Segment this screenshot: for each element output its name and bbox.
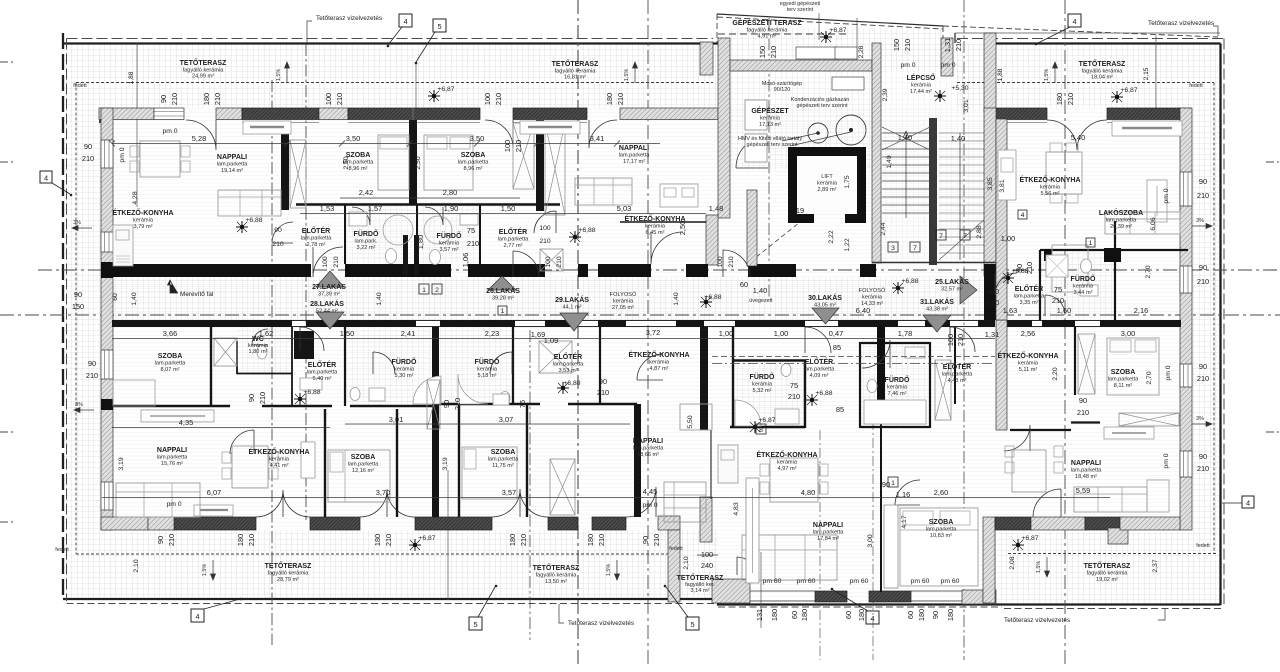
svg-text:2,88: 2,88	[976, 225, 983, 238]
svg-text:75: 75	[790, 381, 798, 390]
svg-text:3,70: 3,70	[376, 488, 390, 497]
svg-text:26.LAKÁS: 26.LAKÁS	[486, 286, 520, 295]
svg-text:100: 100	[987, 287, 999, 296]
svg-text:üvegezett: üvegezett	[749, 298, 773, 304]
svg-text:180: 180	[917, 609, 926, 621]
svg-text:pm 60: pm 60	[941, 578, 960, 585]
svg-text:Tetőterasz vizelvezetés: Tetőterasz vizelvezetés	[568, 620, 634, 627]
svg-text:210: 210	[1025, 262, 1034, 274]
svg-text:pm 0: pm 0	[1163, 188, 1170, 203]
svg-text:19,02 m²: 19,02 m²	[1096, 577, 1118, 583]
svg-text:FÜRDŐ: FÜRDŐ	[750, 372, 775, 381]
svg-text:4,80: 4,80	[801, 488, 815, 497]
svg-text:1,88: 1,88	[997, 68, 1004, 81]
svg-text:2,23: 2,23	[485, 329, 499, 338]
svg-text:kerámia: kerámia	[777, 460, 798, 466]
svg-text:1,09: 1,09	[544, 336, 558, 345]
svg-text:1,48: 1,48	[709, 204, 723, 213]
svg-text:18,04 m²: 18,04 m²	[1091, 75, 1113, 81]
svg-text:ÉTKEZŐ-KONYHA: ÉTKEZŐ-KONYHA	[112, 208, 173, 217]
svg-text:2,16: 2,16	[1134, 306, 1148, 315]
svg-text:ÉTKEZŐ-KONYHA: ÉTKEZŐ-KONYHA	[756, 450, 817, 459]
svg-text:1,88: 1,88	[128, 71, 135, 84]
svg-text:2,41: 2,41	[401, 329, 415, 338]
svg-text:SZOBA: SZOBA	[351, 454, 376, 461]
svg-text:2,28: 2,28	[858, 45, 865, 58]
svg-text:2,39: 2,39	[882, 88, 889, 101]
svg-text:90: 90	[641, 536, 650, 544]
svg-text:1,50: 1,50	[340, 329, 354, 338]
svg-text:3,50: 3,50	[346, 134, 360, 143]
svg-text:30.LAKÁS: 30.LAKÁS	[808, 293, 842, 302]
svg-text:210: 210	[1197, 374, 1209, 383]
svg-text:1,31: 1,31	[943, 38, 952, 52]
svg-text:5,40: 5,40	[1071, 133, 1085, 142]
svg-text:lam.parketta: lam.parketta	[348, 462, 380, 468]
svg-text:3,57: 3,57	[502, 488, 516, 497]
svg-text:7: 7	[939, 233, 943, 240]
svg-text:pm 0: pm 0	[642, 502, 657, 509]
svg-text:LÉPCSŐ: LÉPCSŐ	[907, 73, 936, 82]
svg-text:lam.parketta: lam.parketta	[488, 457, 520, 463]
svg-text:+6,87: +6,87	[437, 86, 454, 93]
svg-text:210: 210	[728, 256, 735, 268]
svg-text:ELŐTÉR: ELŐTÉR	[805, 357, 833, 366]
svg-text:7,46 m²: 7,46 m²	[888, 391, 907, 397]
svg-text:lam.parketta: lam.parketta	[301, 236, 333, 242]
svg-text:1,00: 1,00	[1001, 234, 1015, 243]
svg-text:4: 4	[195, 612, 199, 621]
svg-text:210: 210	[384, 534, 393, 546]
svg-text:+6,88: +6,88	[901, 278, 918, 285]
svg-text:75: 75	[467, 226, 475, 235]
svg-text:4,09 m²: 4,09 m²	[810, 373, 829, 379]
svg-text:3,19: 3,19	[442, 457, 449, 470]
svg-text:1,5%: 1,5%	[1044, 69, 1050, 81]
svg-text:kerámia: kerámia	[1073, 284, 1094, 290]
svg-text:1,5%: 1,5%	[606, 564, 612, 576]
svg-text:90: 90	[88, 359, 96, 368]
svg-text:ÉTKEZŐ-KONYHA: ÉTKEZŐ-KONYHA	[1019, 175, 1080, 184]
svg-text:pm 0: pm 0	[162, 128, 177, 135]
svg-text:2,60: 2,60	[934, 488, 948, 497]
svg-text:pm 60: pm 60	[911, 578, 930, 585]
svg-text:3,19: 3,19	[118, 457, 125, 470]
svg-text:+6,87: +6,87	[758, 417, 775, 424]
svg-text:TETŐTERASZ: TETŐTERASZ	[1084, 561, 1131, 570]
svg-text:210: 210	[170, 93, 179, 105]
svg-text:SZOBA: SZOBA	[929, 519, 954, 526]
svg-text:150: 150	[72, 302, 84, 311]
svg-text:kerámia: kerámia	[439, 241, 460, 247]
svg-text:3,22 m²: 3,22 m²	[357, 245, 376, 251]
svg-text:8: 8	[759, 427, 763, 434]
svg-text:210: 210	[556, 256, 563, 268]
svg-text:60: 60	[740, 280, 748, 289]
svg-text:28.LAKÁS: 28.LAKÁS	[310, 299, 344, 308]
svg-text:210: 210	[82, 154, 94, 163]
svg-text:5,50: 5,50	[687, 415, 694, 428]
svg-text:Tetőterasz vizelvezetés: Tetőterasz vizelvezetés	[1004, 617, 1070, 624]
svg-text:1,78: 1,78	[898, 329, 912, 338]
svg-text:2,10: 2,10	[683, 556, 690, 569]
svg-text:17,17 m²: 17,17 m²	[623, 159, 645, 165]
svg-text:5,56 m²: 5,56 m²	[1041, 191, 1060, 197]
svg-text:60: 60	[790, 611, 799, 619]
svg-text:27,05 m²: 27,05 m²	[612, 305, 634, 311]
svg-text:ELŐTÉR: ELŐTÉR	[554, 352, 582, 361]
svg-text:7: 7	[963, 233, 967, 240]
svg-text:kerámia: kerámia	[477, 367, 498, 373]
svg-text:ELŐTÉR: ELŐTÉR	[1015, 284, 1043, 293]
svg-text:17,44 m²: 17,44 m²	[910, 89, 932, 95]
svg-text:2,50: 2,50	[415, 156, 422, 169]
svg-text:90: 90	[599, 377, 607, 386]
svg-text:90: 90	[74, 290, 82, 299]
svg-text:210: 210	[247, 534, 256, 546]
svg-text:lam.park.: lam.park.	[354, 239, 377, 245]
svg-text:210: 210	[1052, 296, 1064, 305]
svg-text:4,97 m²: 4,97 m²	[778, 466, 797, 472]
svg-text:210: 210	[494, 93, 503, 105]
svg-text:210: 210	[597, 388, 609, 397]
svg-text:4,87 m²: 4,87 m²	[650, 366, 669, 372]
svg-text:NAPPALI: NAPPALI	[1071, 460, 1101, 467]
svg-text:5: 5	[690, 620, 694, 629]
svg-text:1,06: 1,06	[461, 253, 470, 267]
svg-text:2,70: 2,70	[1146, 371, 1153, 384]
svg-text:180: 180	[857, 609, 866, 621]
svg-text:25.LAKÁS: 25.LAKÁS	[935, 277, 969, 286]
svg-text:44,1 m²: 44,1 m²	[563, 305, 582, 311]
svg-text:kerámia: kerámia	[133, 218, 154, 224]
svg-text:pm 0: pm 0	[1165, 365, 1172, 380]
svg-text:NAPPALI: NAPPALI	[619, 145, 649, 152]
svg-text:1,62: 1,62	[259, 329, 273, 338]
svg-text:lam.parketta: lam.parketta	[307, 370, 339, 376]
svg-text:3,72: 3,72	[646, 328, 660, 337]
svg-text:3,53 m²: 3,53 m²	[559, 368, 578, 374]
svg-text:+6,87: +6,87	[829, 27, 846, 34]
svg-text:90: 90	[1199, 452, 1207, 461]
svg-text:fagyálló kerámia: fagyálló kerámia	[1087, 571, 1129, 577]
svg-text:pm 0: pm 0	[900, 62, 915, 69]
svg-text:TETŐTERASZ: TETŐTERASZ	[552, 59, 599, 68]
svg-text:ELŐTÉR: ELŐTÉR	[308, 360, 336, 369]
svg-text:LAKÓSZOBA: LAKÓSZOBA	[1099, 208, 1143, 217]
svg-text:3,81: 3,81	[999, 179, 1006, 192]
svg-text:Tetőterasz vizelvezetés: Tetőterasz vizelvezetés	[1148, 20, 1214, 27]
svg-text:1,63: 1,63	[1003, 306, 1017, 315]
svg-text:ÉTKEZŐ-KONYHA: ÉTKEZŐ-KONYHA	[624, 214, 685, 223]
svg-text:3%: 3%	[73, 220, 81, 226]
svg-text:1,40: 1,40	[376, 292, 383, 305]
svg-text:1,5%: 1,5%	[624, 69, 630, 81]
svg-text:kerámia: kerámia	[613, 299, 634, 305]
svg-text:28,79 m²: 28,79 m²	[277, 577, 299, 583]
svg-text:8,96 m²: 8,96 m²	[464, 166, 483, 172]
svg-text:TETŐTERASZ: TETŐTERASZ	[265, 561, 312, 570]
svg-text:2,77 m²: 2,77 m²	[504, 243, 523, 249]
svg-text:100: 100	[701, 550, 713, 559]
svg-text:3,44 m²: 3,44 m²	[1074, 290, 1093, 296]
svg-text:3%: 3%	[1196, 416, 1204, 422]
svg-text:kerámia: kerámia	[645, 224, 666, 230]
svg-text:90: 90	[1079, 396, 1087, 405]
svg-text:lam.parketta: lam.parketta	[633, 446, 665, 452]
svg-text:ELŐTÉR: ELŐTÉR	[499, 227, 527, 236]
svg-text:FÜRDŐ: FÜRDŐ	[392, 357, 417, 366]
svg-text:kerámia: kerámia	[817, 181, 838, 187]
svg-text:3%: 3%	[75, 402, 83, 408]
svg-text:210: 210	[788, 392, 800, 401]
svg-text:1,00: 1,00	[774, 329, 788, 338]
svg-text:Merevítő fal: Merevítő fal	[180, 291, 213, 298]
svg-text:ÉTKEZŐ-KONYHA: ÉTKEZŐ-KONYHA	[628, 350, 689, 359]
svg-text:4,28: 4,28	[132, 191, 139, 204]
svg-text:210: 210	[519, 534, 528, 546]
svg-text:ÉTKEZŐ-KONYHA: ÉTKEZŐ-KONYHA	[248, 447, 309, 456]
svg-text:2,42: 2,42	[359, 188, 373, 197]
svg-text:5,03: 5,03	[617, 204, 631, 213]
svg-text:+6,87: +6,87	[1021, 535, 1038, 542]
svg-text:2,50: 2,50	[678, 221, 687, 235]
svg-text:+6,88: +6,88	[578, 227, 595, 234]
svg-text:1,90: 1,90	[444, 204, 458, 213]
svg-text:210: 210	[333, 256, 340, 268]
svg-text:6,07: 6,07	[207, 488, 221, 497]
svg-text:90/120: 90/120	[774, 87, 791, 93]
svg-text:2,10: 2,10	[133, 559, 140, 572]
svg-text:TETŐTERASZ: TETŐTERASZ	[677, 573, 724, 582]
svg-text:37,39 m²: 37,39 m²	[318, 292, 340, 298]
svg-text:lam.parketta: lam.parketta	[1106, 218, 1138, 224]
svg-text:90: 90	[159, 95, 168, 103]
svg-text:1,40: 1,40	[673, 292, 680, 305]
svg-text:kerámia: kerámia	[1018, 361, 1039, 367]
svg-text:3,01: 3,01	[389, 415, 403, 424]
svg-text:GÉPÉSZET: GÉPÉSZET	[751, 106, 789, 115]
svg-text:131: 131	[755, 609, 764, 621]
svg-text:kerámia: kerámia	[752, 382, 773, 388]
svg-text:4: 4	[44, 174, 48, 183]
svg-text:Tetőterasz vizelvezetés: Tetőterasz vizelvezetés	[316, 15, 382, 22]
svg-text:75: 75	[1054, 285, 1062, 294]
svg-text:90: 90	[84, 142, 92, 151]
svg-text:4,17: 4,17	[901, 515, 908, 528]
svg-text:1,57: 1,57	[368, 204, 382, 213]
svg-text:210: 210	[769, 46, 778, 58]
svg-text:1,50: 1,50	[501, 204, 515, 213]
svg-text:lam.parketta: lam.parketta	[217, 162, 249, 168]
svg-text:1,60: 1,60	[1057, 306, 1071, 315]
svg-text:kerámia: kerámia	[911, 83, 932, 89]
svg-text:lam.parketta: lam.parketta	[813, 530, 845, 536]
svg-text:180: 180	[508, 534, 517, 546]
svg-text:210: 210	[514, 140, 523, 152]
svg-text:3,50: 3,50	[470, 134, 484, 143]
svg-text:19,14 m²: 19,14 m²	[221, 168, 243, 174]
svg-text:pm 0: pm 0	[940, 62, 955, 69]
svg-text:180: 180	[946, 609, 955, 621]
svg-text:kerámia: kerámia	[269, 457, 290, 463]
svg-text:kerámia: kerámia	[1040, 185, 1061, 191]
svg-text:SZOBA: SZOBA	[491, 449, 516, 456]
svg-text:SZOBA: SZOBA	[158, 353, 183, 360]
svg-text:2,44: 2,44	[880, 222, 887, 235]
svg-text:ÉTKEZŐ-KONYHA: ÉTKEZŐ-KONYHA	[997, 351, 1058, 360]
svg-text:lam.parketta: lam.parketta	[1014, 294, 1046, 300]
svg-text:1,40: 1,40	[753, 286, 767, 295]
svg-text:NAPPALI: NAPPALI	[633, 438, 663, 445]
svg-text:1,80 m²: 1,80 m²	[249, 349, 268, 355]
svg-text:3,79 m²: 3,79 m²	[134, 224, 153, 230]
svg-text:11,75 m²: 11,75 m²	[492, 463, 514, 469]
svg-text:4,45: 4,45	[643, 487, 657, 496]
svg-text:pm 0: pm 0	[119, 147, 126, 162]
svg-text:3,00: 3,00	[867, 534, 874, 547]
svg-text:180: 180	[605, 93, 614, 105]
svg-text:3,85: 3,85	[987, 177, 994, 190]
svg-text:90: 90	[247, 394, 256, 402]
svg-text:150: 150	[758, 46, 767, 58]
svg-text:+6,88: +6,88	[815, 390, 832, 397]
svg-text:fedett: fedett	[1196, 543, 1210, 549]
svg-text:3,00: 3,00	[1121, 329, 1135, 338]
svg-text:90: 90	[931, 611, 940, 619]
svg-text:8,11 m²: 8,11 m²	[1114, 383, 1133, 389]
svg-text:3,57 m²: 3,57 m²	[440, 247, 459, 253]
svg-text:kerámia: kerámia	[394, 367, 415, 373]
svg-text:FÜRDŐ: FÜRDŐ	[354, 229, 379, 238]
svg-text:210: 210	[467, 239, 479, 248]
svg-text:210: 210	[1066, 93, 1075, 105]
svg-text:1: 1	[1089, 240, 1093, 247]
svg-text:2,37: 2,37	[1152, 559, 1159, 572]
svg-text:31.LAKÁS: 31.LAKÁS	[920, 297, 954, 306]
svg-text:lam.parketta: lam.parketta	[1071, 468, 1103, 474]
svg-text:180: 180	[770, 609, 779, 621]
svg-text:18,48 m²: 18,48 m²	[1075, 474, 1097, 480]
svg-text:2,15: 2,15	[1143, 67, 1150, 80]
svg-text:4: 4	[1021, 212, 1025, 219]
svg-text:kerámia: kerámia	[862, 295, 883, 301]
svg-text:100: 100	[539, 225, 551, 232]
svg-text:3,01: 3,01	[963, 99, 970, 112]
svg-text:180: 180	[202, 93, 211, 105]
svg-text:2,78 m²: 2,78 m²	[307, 242, 326, 248]
svg-text:gépészeti terv szerint: gépészeti terv szerint	[797, 103, 848, 109]
svg-text:8,96 m²: 8,96 m²	[349, 166, 368, 172]
svg-text:NAPPALI: NAPPALI	[157, 447, 187, 454]
svg-text:pm 60: pm 60	[763, 578, 782, 585]
svg-text:2,56: 2,56	[1021, 329, 1035, 338]
svg-text:210: 210	[954, 39, 963, 51]
svg-text:1,75: 1,75	[844, 175, 851, 188]
svg-text:210: 210	[1197, 464, 1209, 473]
svg-text:5,11 m²: 5,11 m²	[1019, 367, 1038, 373]
svg-text:2,50: 2,50	[343, 156, 350, 169]
svg-text:5: 5	[473, 620, 477, 629]
svg-text:+6,88: +6,88	[563, 380, 580, 387]
svg-text:100: 100	[483, 93, 492, 105]
svg-text:3,14 m²: 3,14 m²	[691, 588, 710, 594]
svg-text:pm 0: pm 0	[1163, 453, 1170, 468]
svg-text:kerámia: kerámia	[760, 116, 781, 122]
svg-text:1,80: 1,80	[416, 235, 425, 249]
svg-text:1,22: 1,22	[844, 238, 851, 251]
svg-text:210: 210	[86, 371, 98, 380]
svg-text:SZOBA: SZOBA	[461, 152, 486, 159]
svg-text:90: 90	[156, 536, 165, 544]
svg-text:4,41 m²: 4,41 m²	[270, 463, 289, 469]
svg-text:1,31: 1,31	[985, 330, 999, 339]
svg-text:13,50 m²: 13,50 m²	[545, 579, 567, 585]
svg-text:3,41: 3,41	[590, 134, 604, 143]
svg-text:pm 60: pm 60	[797, 578, 816, 585]
svg-text:100: 100	[717, 256, 724, 268]
svg-text:180: 180	[586, 534, 595, 546]
svg-text:pm 0: pm 0	[166, 501, 181, 508]
svg-text:fagyálló kerámia: fagyálló kerámia	[536, 573, 578, 579]
svg-text:210: 210	[272, 241, 284, 248]
svg-text:180: 180	[1055, 93, 1064, 105]
svg-text:5,59: 5,59	[1076, 486, 1090, 495]
svg-text:29.LAKÁS: 29.LAKÁS	[555, 295, 589, 304]
svg-text:FOLYOSÓ: FOLYOSÓ	[610, 291, 637, 298]
svg-text:2,20: 2,20	[1052, 367, 1059, 380]
svg-text:+6,87: +6,87	[418, 535, 435, 542]
svg-text:5,40 m²: 5,40 m²	[313, 376, 332, 382]
svg-text:pm 60: pm 60	[850, 578, 869, 585]
svg-text:210: 210	[903, 39, 912, 51]
svg-text:16,81 m²: 16,81 m²	[564, 75, 586, 81]
svg-text:FÜRDŐ: FÜRDŐ	[885, 375, 910, 384]
svg-text:3,35 m²: 3,35 m²	[1020, 300, 1039, 306]
svg-text:2,89 m²: 2,89 m²	[818, 187, 837, 193]
svg-text:TETŐTERASZ: TETŐTERASZ	[180, 58, 227, 67]
svg-text:1,5%: 1,5%	[276, 69, 282, 81]
svg-text:5,30 m²: 5,30 m²	[395, 373, 414, 379]
svg-text:lam.parketta: lam.parketta	[942, 372, 974, 378]
svg-text:+6,88: +6,88	[245, 217, 262, 224]
svg-text:210: 210	[597, 534, 606, 546]
svg-text:210: 210	[1197, 191, 1209, 200]
svg-text:17,84 m²: 17,84 m²	[817, 536, 839, 542]
svg-text:2,08: 2,08	[1009, 556, 1016, 569]
svg-text:210: 210	[956, 334, 965, 346]
svg-text:90: 90	[274, 227, 282, 234]
svg-text:FÜRDŐ: FÜRDŐ	[437, 231, 462, 240]
svg-text:1,40: 1,40	[131, 292, 138, 305]
svg-text:210: 210	[258, 392, 267, 404]
svg-text:210: 210	[539, 238, 551, 245]
svg-text:FÜRDŐ: FÜRDŐ	[1071, 274, 1096, 283]
svg-text:90: 90	[1199, 177, 1207, 186]
svg-text:210: 210	[1197, 277, 1209, 286]
svg-text:4: 4	[870, 614, 874, 623]
svg-text:180: 180	[800, 609, 809, 621]
svg-text:5,28: 5,28	[192, 134, 206, 143]
svg-text:210: 210	[453, 398, 462, 410]
svg-text:TETŐTERASZ: TETŐTERASZ	[1079, 59, 1126, 68]
svg-text:43,38 m²: 43,38 m²	[926, 307, 948, 313]
svg-text:lam.parketta: lam.parketta	[804, 367, 836, 373]
svg-text:100: 100	[503, 140, 512, 152]
svg-text:90: 90	[442, 400, 451, 408]
svg-text:4: 4	[1072, 17, 1076, 26]
svg-text:32,57 m²: 32,57 m²	[941, 287, 963, 293]
